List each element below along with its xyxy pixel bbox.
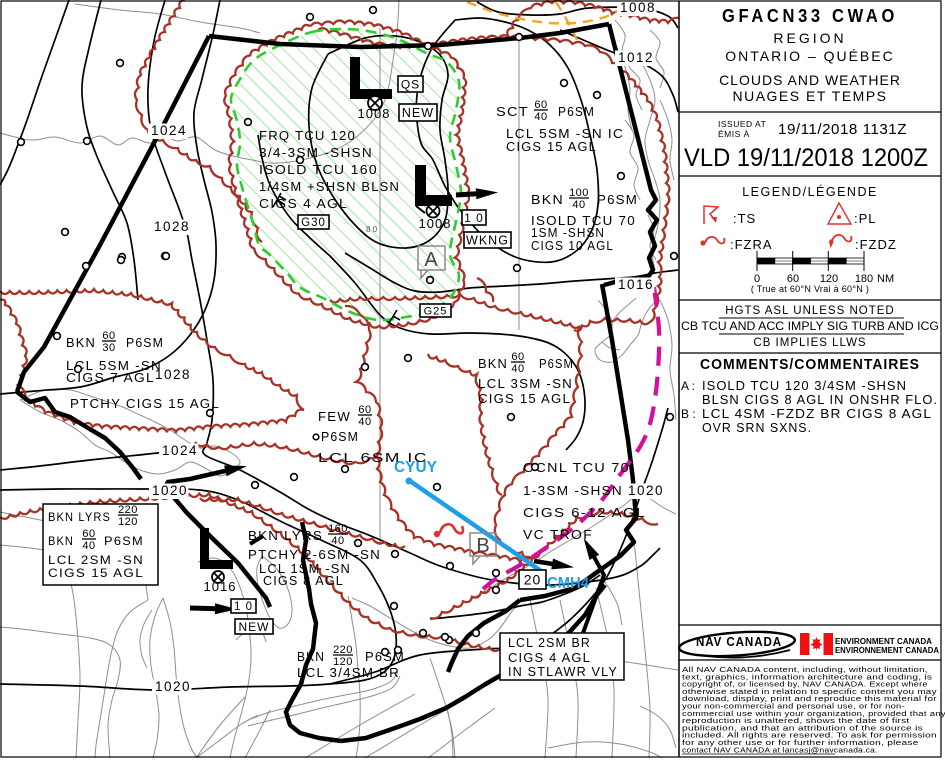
svg-text:40: 40 bbox=[358, 416, 371, 428]
svg-text:BKN LYRS: BKN LYRS bbox=[248, 528, 323, 543]
svg-text:1016: 1016 bbox=[204, 579, 237, 594]
svg-text:ISSUED AT: ISSUED AT bbox=[718, 119, 766, 129]
svg-text:CMH4: CMH4 bbox=[547, 575, 589, 592]
svg-text:1024: 1024 bbox=[151, 123, 187, 138]
svg-text:P6SM: P6SM bbox=[104, 534, 144, 548]
svg-text:ENVIRONNEMENT CANADA: ENVIRONNEMENT CANADA bbox=[835, 646, 939, 655]
svg-text:40: 40 bbox=[572, 199, 585, 211]
svg-text:VLD 19/11/2018 1200Z: VLD 19/11/2018 1200Z bbox=[684, 144, 928, 172]
svg-text:30: 30 bbox=[102, 342, 115, 354]
svg-text:40: 40 bbox=[82, 540, 95, 552]
svg-text:1020: 1020 bbox=[628, 483, 664, 498]
svg-text:60: 60 bbox=[82, 528, 95, 540]
svg-text::PL: :PL bbox=[854, 211, 877, 226]
svg-text:NEW: NEW bbox=[239, 620, 270, 634]
svg-text:COMMENTS/COMMENTAIRES: COMMENTS/COMMENTAIRES bbox=[700, 357, 920, 373]
svg-text:BKN: BKN bbox=[66, 335, 96, 350]
svg-text:ISOLD TCU 160: ISOLD TCU 160 bbox=[259, 162, 378, 177]
svg-text:P6SM: P6SM bbox=[558, 104, 595, 119]
svg-text:LCL 4SM -FZDZ BR CIGS 8 AGL: LCL 4SM -FZDZ BR CIGS 8 AGL bbox=[702, 407, 932, 421]
svg-text:ISOLD TCU 120 3/4SM -SHSN: ISOLD TCU 120 3/4SM -SHSN bbox=[702, 379, 907, 393]
svg-text:publication, and that an attri: publication, and that an attribution of … bbox=[682, 725, 924, 732]
svg-text:LCL 6SM IC: LCL 6SM IC bbox=[318, 450, 428, 465]
svg-text:40: 40 bbox=[331, 535, 344, 547]
svg-text:CIGS 6-12 AGL: CIGS 6-12 AGL bbox=[523, 505, 646, 520]
svg-text:NM: NM bbox=[877, 273, 894, 285]
svg-text:LCL 3SM -SN: LCL 3SM -SN bbox=[478, 376, 573, 391]
svg-text::FZRA: :FZRA bbox=[730, 237, 773, 252]
svg-text:P6SM: P6SM bbox=[126, 335, 164, 350]
svg-text:LCL 2SM -SN: LCL 2SM -SN bbox=[48, 553, 144, 567]
svg-text:1028: 1028 bbox=[154, 219, 190, 234]
svg-text:1008: 1008 bbox=[419, 216, 452, 231]
svg-text:1020: 1020 bbox=[152, 483, 188, 498]
svg-text:REGION: REGION bbox=[773, 30, 846, 46]
svg-text:8 0: 8 0 bbox=[366, 225, 378, 234]
svg-text:VC TROF: VC TROF bbox=[523, 527, 593, 542]
svg-text:A :: A : bbox=[681, 379, 695, 393]
svg-text:G25: G25 bbox=[424, 305, 448, 317]
svg-text::FZDZ: :FZDZ bbox=[855, 237, 897, 252]
svg-text:ONTARIO – QUÉBEC: ONTARIO – QUÉBEC bbox=[725, 48, 894, 64]
svg-text:PTCHY 2-6SM -SN: PTCHY 2-6SM -SN bbox=[248, 547, 381, 562]
svg-text:1/4SM +SHSN BLSN: 1/4SM +SHSN BLSN bbox=[259, 179, 400, 194]
svg-text:All NAV CANADA content, includ: All NAV CANADA content, including, witho… bbox=[682, 667, 928, 674]
svg-text:ÉMIS À: ÉMIS À bbox=[718, 129, 750, 139]
svg-text:1008: 1008 bbox=[358, 106, 391, 121]
svg-text:copyright of, or licensed by,: copyright of, or licensed by, NAV CANADA… bbox=[682, 682, 928, 689]
svg-text:BKN: BKN bbox=[297, 649, 325, 664]
svg-text:included. All rights are reser: included. All rights are reserved. To as… bbox=[682, 733, 937, 740]
svg-text:ENVIRONMENT CANADA: ENVIRONMENT CANADA bbox=[835, 637, 932, 646]
svg-text:text, graphics, information ar: text, graphics, information architecture… bbox=[682, 674, 933, 681]
svg-text:LEGEND/LÉGENDE: LEGEND/LÉGENDE bbox=[742, 184, 878, 199]
svg-text:60: 60 bbox=[534, 99, 547, 111]
svg-text:commercial use within your org: commercial use within your organization,… bbox=[682, 711, 945, 718]
svg-text:NEW: NEW bbox=[402, 106, 434, 120]
svg-text:P6SM: P6SM bbox=[321, 429, 359, 444]
svg-text:A: A bbox=[424, 249, 438, 271]
svg-text:NUAGES ET TEMPS: NUAGES ET TEMPS bbox=[732, 88, 887, 104]
svg-text:your non-commercial and person: your non-commercial and personal use, or… bbox=[682, 704, 905, 711]
svg-text:reproduction is unaltered, sho: reproduction is unaltered, shows the dat… bbox=[682, 718, 910, 725]
svg-text:3/4-3SM -SHSN: 3/4-3SM -SHSN bbox=[259, 145, 373, 160]
svg-text:IN STLAWR VLY: IN STLAWR VLY bbox=[508, 664, 618, 679]
svg-text:BKN LYRS: BKN LYRS bbox=[48, 510, 111, 524]
svg-text:BKN: BKN bbox=[48, 534, 74, 548]
svg-text:FRQ TCU 120: FRQ TCU 120 bbox=[259, 128, 356, 143]
svg-text:1 0: 1 0 bbox=[464, 211, 484, 225]
svg-text:B: B bbox=[476, 535, 489, 557]
svg-text:220: 220 bbox=[333, 644, 353, 656]
svg-text:P6SM: P6SM bbox=[597, 192, 638, 207]
svg-text:CLOUDS AND WEATHER: CLOUDS AND WEATHER bbox=[719, 72, 901, 88]
svg-text:1012: 1012 bbox=[618, 50, 654, 65]
svg-text:40: 40 bbox=[534, 111, 547, 123]
svg-text:LCL 2SM BR: LCL 2SM BR bbox=[508, 635, 591, 650]
svg-text:WKNG: WKNG bbox=[466, 234, 509, 248]
svg-text:CIGS 4 AGL: CIGS 4 AGL bbox=[508, 650, 591, 665]
svg-text:CIGS 15 AGL: CIGS 15 AGL bbox=[506, 139, 597, 154]
svg-text:1016: 1016 bbox=[618, 277, 654, 292]
svg-text:NAV CANADA: NAV CANADA bbox=[696, 634, 782, 649]
svg-text:160: 160 bbox=[328, 523, 348, 535]
svg-text:BLSN CIGS 8 AGL IN ONSHR FLO.: BLSN CIGS 8 AGL IN ONSHR FLO. bbox=[702, 393, 938, 407]
svg-text:1 0: 1 0 bbox=[234, 601, 253, 613]
svg-text:1020: 1020 bbox=[155, 679, 191, 694]
svg-text:CIGS 10 AGL: CIGS 10 AGL bbox=[531, 238, 614, 253]
svg-text:220: 220 bbox=[118, 504, 138, 516]
svg-text:SCT: SCT bbox=[496, 104, 529, 119]
svg-text:CB TCU AND ACC IMPLY SIG TURB: CB TCU AND ACC IMPLY SIG TURB AND ICG bbox=[681, 321, 939, 333]
svg-text:B :: B : bbox=[681, 407, 696, 421]
svg-text:40: 40 bbox=[511, 363, 524, 375]
svg-text:19/11/2018 1131Z: 19/11/2018 1131Z bbox=[778, 121, 907, 138]
svg-text:( True at 60°N Vrai à 60°N ): ( True at 60°N Vrai à 60°N ) bbox=[751, 284, 869, 294]
svg-text:HGTS ASL UNLESS NOTED: HGTS ASL UNLESS NOTED bbox=[725, 305, 894, 317]
svg-text:BKN: BKN bbox=[531, 192, 564, 207]
svg-text:CIGS 4 AGL: CIGS 4 AGL bbox=[259, 196, 348, 211]
svg-text:download, display, print and r: download, display, print and reproduce t… bbox=[682, 696, 938, 703]
svg-text:OVR SRN SXNS.: OVR SRN SXNS. bbox=[702, 421, 812, 435]
svg-text:QS: QS bbox=[401, 77, 420, 91]
svg-text:1-3SM -SHSN: 1-3SM -SHSN bbox=[523, 483, 623, 498]
svg-text:otherwise stated in relation t: otherwise stated in relation to specific… bbox=[682, 689, 937, 696]
svg-text::TS: :TS bbox=[733, 211, 756, 226]
svg-text:CIGS 15 AGL: CIGS 15 AGL bbox=[48, 566, 144, 580]
svg-text:60: 60 bbox=[102, 330, 115, 342]
svg-text:1008: 1008 bbox=[620, 0, 656, 15]
svg-text:for any other use or for furth: for any other use or for further informa… bbox=[682, 740, 919, 747]
svg-text:BKN: BKN bbox=[478, 356, 508, 371]
svg-text:CIGS 8 AGL: CIGS 8 AGL bbox=[263, 573, 344, 588]
svg-text:60: 60 bbox=[358, 404, 371, 416]
svg-text:contact NAV CANADA at lancasj@: contact NAV CANADA at lancasj@navcanada.… bbox=[682, 747, 878, 754]
svg-text:GFACN33 CWAO: GFACN33 CWAO bbox=[722, 6, 898, 26]
svg-text:20: 20 bbox=[524, 572, 542, 588]
svg-text:G30: G30 bbox=[301, 217, 326, 229]
svg-text:60: 60 bbox=[511, 351, 524, 363]
svg-text:P6SM: P6SM bbox=[539, 356, 574, 371]
svg-text:LCL 3/4SM BR: LCL 3/4SM BR bbox=[297, 665, 400, 680]
svg-text:100: 100 bbox=[569, 187, 589, 199]
svg-text:CIGS 15 AGL: CIGS 15 AGL bbox=[478, 391, 571, 406]
svg-text:1024: 1024 bbox=[162, 443, 198, 458]
svg-text:FEW: FEW bbox=[318, 409, 351, 424]
svg-text:PTCHY CIGS 15 AGL: PTCHY CIGS 15 AGL bbox=[70, 396, 220, 411]
svg-text:120: 120 bbox=[118, 516, 138, 528]
svg-text:CB IMPLIES LLWS: CB IMPLIES LLWS bbox=[753, 337, 866, 349]
